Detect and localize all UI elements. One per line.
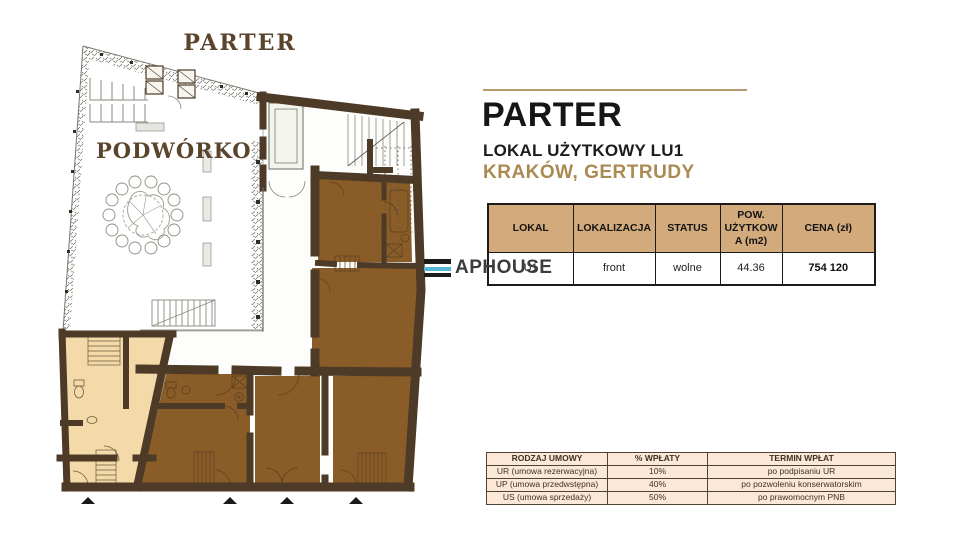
payment-header-row: RODZAJ UMOWY % WPŁATY TERMIN WPŁAT xyxy=(487,453,896,466)
col-pow: POW. UŻYTKOWA (m2) xyxy=(720,204,782,252)
cell-lokalizacja: front xyxy=(573,252,655,285)
payment-row-us: US (umowa sprzedaży) 50% po prawomocnym … xyxy=(487,492,896,505)
col-rodzaj-umowy: RODZAJ UMOWY xyxy=(487,453,608,466)
cell-cena: 754 120 xyxy=(782,252,875,285)
cell-rodzaj: UR (umowa rezerwacyjna) xyxy=(487,466,608,479)
room-brown-3 xyxy=(333,376,413,485)
col-lokalizacja: LOKALIZACJA xyxy=(573,204,655,252)
col-cena: CENA (zł) xyxy=(782,204,875,252)
page: { "plan": { "title": "PARTER", "courtyar… xyxy=(0,0,960,548)
payment-row-up: UP (umowa przedwstępna) 40% po pozwoleni… xyxy=(487,479,896,492)
location-label: KRAKÓW, GERTRUDY xyxy=(483,162,695,184)
cell-procent: 50% xyxy=(608,492,708,505)
cell-rodzaj: US (umowa sprzedaży) xyxy=(487,492,608,505)
cell-termin: po pozwoleniu konserwatorskim xyxy=(708,479,896,492)
aphouse-logo-icon xyxy=(424,259,451,278)
plan-title: PARTER xyxy=(183,30,296,56)
room-brown-1 xyxy=(318,172,412,262)
cell-status: wolne xyxy=(655,252,720,285)
courtyard-label: PODWÓRKO xyxy=(96,138,252,163)
header-rule xyxy=(483,89,747,91)
aphouse-logo-text: APHOUSE xyxy=(455,257,552,279)
floor-plan: PARTER xyxy=(0,0,470,548)
cell-procent: 40% xyxy=(608,479,708,492)
cell-procent: 10% xyxy=(608,466,708,479)
courtyard-stairs xyxy=(152,300,215,326)
courtyard-bench xyxy=(136,123,164,131)
tree-icon xyxy=(103,176,183,254)
payment-row-ur: UR (umowa rezerwacyjna) 10% po podpisani… xyxy=(487,466,896,479)
aphouse-watermark: APHOUSE xyxy=(424,257,552,279)
cell-termin: po podpisaniu UR xyxy=(708,466,896,479)
cell-termin: po prawomocnym PNB xyxy=(708,492,896,505)
unit-subtitle: LOKAL UŻYTKOWY LU1 xyxy=(483,141,683,161)
col-lokal: LOKAL xyxy=(488,204,573,252)
cell-pow: 44.36 xyxy=(720,252,782,285)
entrance-markers xyxy=(81,497,363,504)
offer-header-row: LOKAL LOKALIZACJA STATUS POW. UŻYTKOWA (… xyxy=(488,204,875,252)
room-brown-2 xyxy=(312,268,420,372)
page-title: PARTER xyxy=(482,96,622,135)
courtyard-pillars xyxy=(203,151,211,266)
col-status: STATUS xyxy=(655,204,720,252)
col-procent-wplaty: % WPŁATY xyxy=(608,453,708,466)
vestibule xyxy=(269,103,303,169)
col-termin-wplat: TERMIN WPŁAT xyxy=(708,453,896,466)
cell-rodzaj: UP (umowa przedwstępna) xyxy=(487,479,608,492)
parking-area xyxy=(90,78,148,122)
payment-table: RODZAJ UMOWY % WPŁATY TERMIN WPŁAT UR (u… xyxy=(486,452,896,505)
